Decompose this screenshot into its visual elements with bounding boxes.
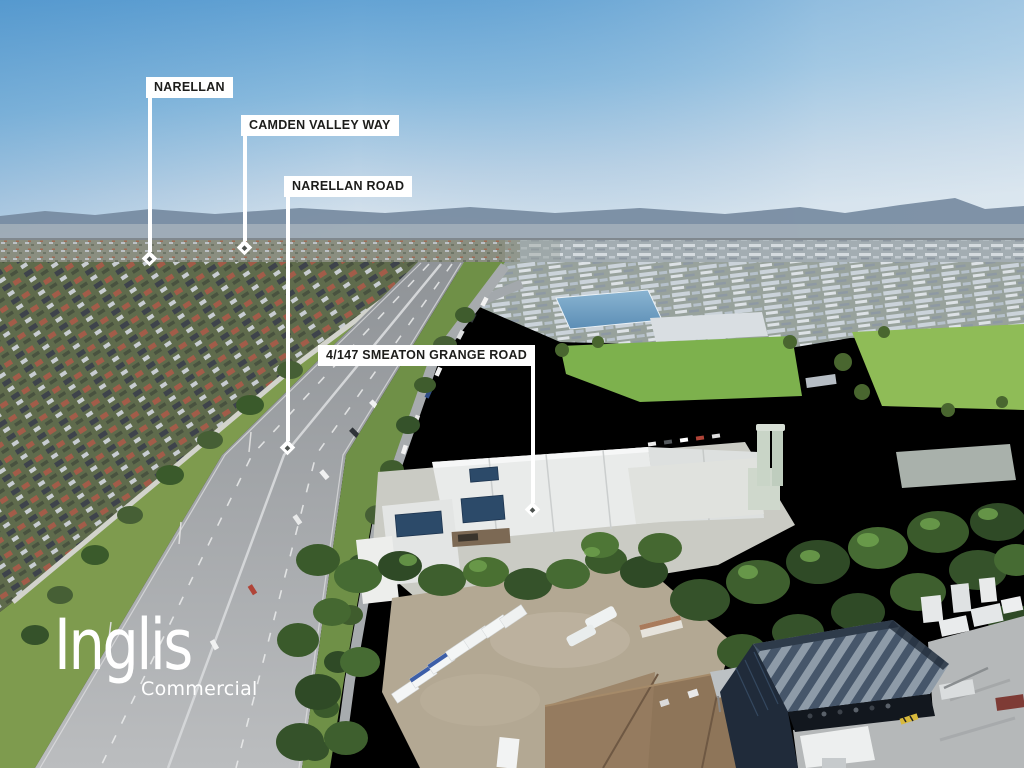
scene: NARELLAN CAMDEN VALLEY WAY NARELLAN ROAD… xyxy=(0,0,1024,768)
brand-logo-division: Commercial xyxy=(141,680,258,699)
callout-line xyxy=(286,195,290,441)
callout-line xyxy=(243,134,247,241)
callout-label-subject-address: 4/147 SMEATON GRANGE ROAD xyxy=(318,345,535,366)
callout-line xyxy=(148,96,152,252)
callout-label-narellan: NARELLAN xyxy=(146,77,233,98)
callout-label-narellan-road: NARELLAN ROAD xyxy=(284,176,412,197)
concrete-plant xyxy=(628,424,1016,524)
brand-logo: Inglis xyxy=(54,610,191,680)
sky xyxy=(0,0,1024,250)
callout-line xyxy=(531,366,535,503)
callout-label-camden-valley-way: CAMDEN VALLEY WAY xyxy=(241,115,399,136)
